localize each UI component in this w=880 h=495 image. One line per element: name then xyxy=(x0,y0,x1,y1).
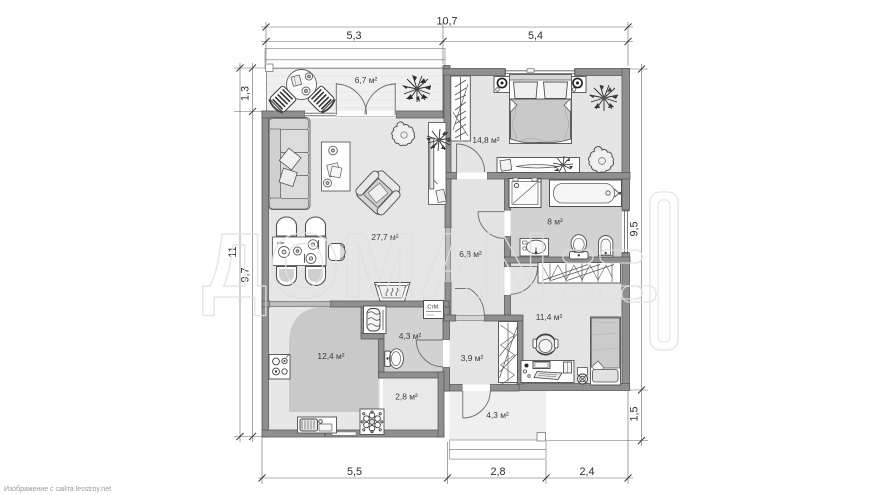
svg-text:5,5: 5,5 xyxy=(347,466,362,478)
svg-text:14,8 м²: 14,8 м² xyxy=(472,135,499,145)
svg-text:10,7: 10,7 xyxy=(436,16,457,28)
svg-text:ДОМА: ДОМА xyxy=(202,215,486,317)
svg-text:6,7 м²: 6,7 м² xyxy=(355,75,378,85)
svg-text:N: N xyxy=(480,213,549,320)
svg-text:2,8 м²: 2,8 м² xyxy=(395,392,418,402)
svg-text:9,5: 9,5 xyxy=(629,221,641,236)
svg-text:1,5: 1,5 xyxy=(629,406,641,421)
svg-text:5,3: 5,3 xyxy=(346,30,361,42)
svg-text:3,9 м²: 3,9 м² xyxy=(461,353,484,363)
svg-text:8 м²: 8 м² xyxy=(547,217,563,227)
svg-text:4,3 м²: 4,3 м² xyxy=(399,331,422,341)
svg-text:2,4: 2,4 xyxy=(579,466,594,478)
svg-text:12,4 м²: 12,4 м² xyxy=(317,351,344,361)
svg-text:Изображение с сайта lesstroy.n: Изображение с сайта lesstroy.net xyxy=(4,485,111,493)
svg-text:5,4: 5,4 xyxy=(528,30,543,42)
svg-text:4,3 м²: 4,3 м² xyxy=(486,410,509,420)
svg-text:1,3: 1,3 xyxy=(240,86,252,101)
svg-text:2,8: 2,8 xyxy=(490,466,505,478)
